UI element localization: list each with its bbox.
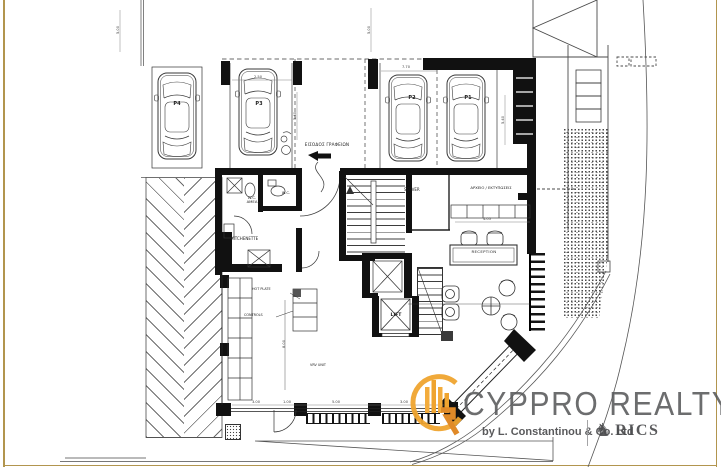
dim-text: 5.40 xyxy=(501,116,505,124)
lift-core xyxy=(362,253,453,341)
dim-text: 5.40 xyxy=(293,112,297,120)
parking-label-p1: P1 xyxy=(459,96,477,101)
external-steps xyxy=(576,70,601,122)
dim-text: 4.05 xyxy=(483,217,491,221)
archive-label: ΑΡΧΕΙΟ / ΕΚΤΥΠΩΣΕΙΣ xyxy=(456,186,526,190)
cyppro-realty-watermark: CYPPRO REALTY by L. Constantinou & Co. L… xyxy=(405,364,715,456)
wc-accessible-line2: ΑΜΕΑ xyxy=(247,199,258,204)
server-label: SERVER xyxy=(404,188,432,192)
wc-kitchenette-core xyxy=(220,175,319,272)
wc-label: W.C. xyxy=(276,191,296,195)
logo-divider xyxy=(587,420,588,446)
canopy-outline xyxy=(533,0,656,262)
entrance-arrow-icon xyxy=(308,151,331,161)
cyppro-logo-icon xyxy=(408,370,466,440)
parking-label-p4: P4 xyxy=(168,102,186,107)
dim-text: 7.70 xyxy=(402,65,410,69)
controls-annotation: CONTROLS xyxy=(244,314,278,318)
dim-text: 5.00 xyxy=(332,400,340,404)
office-entrance-label: ΕΙΣΟΔΟΣ ΓΡΑΦΕΙΩΝ xyxy=(294,143,360,147)
dim-text: 3.00 xyxy=(252,400,260,404)
kitchenette-label: KITCHENETTE xyxy=(231,237,279,241)
office-entrance-path xyxy=(300,151,340,216)
dim-text: 1.00 xyxy=(283,400,291,404)
parking-label-p3: P3 xyxy=(250,102,268,107)
reception-label: RECEPTION xyxy=(462,250,506,254)
lift-label: LIFT xyxy=(384,314,408,319)
stair-core xyxy=(339,171,450,334)
dim-text: 5.00 xyxy=(116,26,120,34)
parking-label-p2: P2 xyxy=(403,96,421,101)
archive-room xyxy=(451,193,531,218)
floor-plan-page: P4 P3 P2 P1 ΕΙΣΟΔΟΣ ΓΡΑΦΕΙΩΝ W.C. ΑΜΕΑ W… xyxy=(0,0,721,467)
dim-text: 2.50 xyxy=(254,75,262,79)
dim-text: 5.00 xyxy=(367,26,371,34)
car-p4 xyxy=(155,73,200,159)
rics-text: RICS xyxy=(615,422,659,440)
rics-lion-icon: ♞ xyxy=(595,422,611,440)
scooter xyxy=(281,132,291,155)
brand-name-text: CYPPRO REALTY xyxy=(463,386,721,424)
car-p1 xyxy=(444,75,489,161)
vrv-annotation: VRV UNIT xyxy=(310,364,340,368)
reception-area xyxy=(408,231,530,330)
car-p3 xyxy=(236,69,281,155)
wc-accessible-label: W.C. ΑΜΕΑ xyxy=(240,196,264,204)
car-p2 xyxy=(386,75,431,161)
dim-text: 8.00 xyxy=(282,340,286,348)
rics-mark: ♞ RICS xyxy=(595,422,659,440)
hot-plate-annotation: HOT PLATE xyxy=(252,288,290,292)
